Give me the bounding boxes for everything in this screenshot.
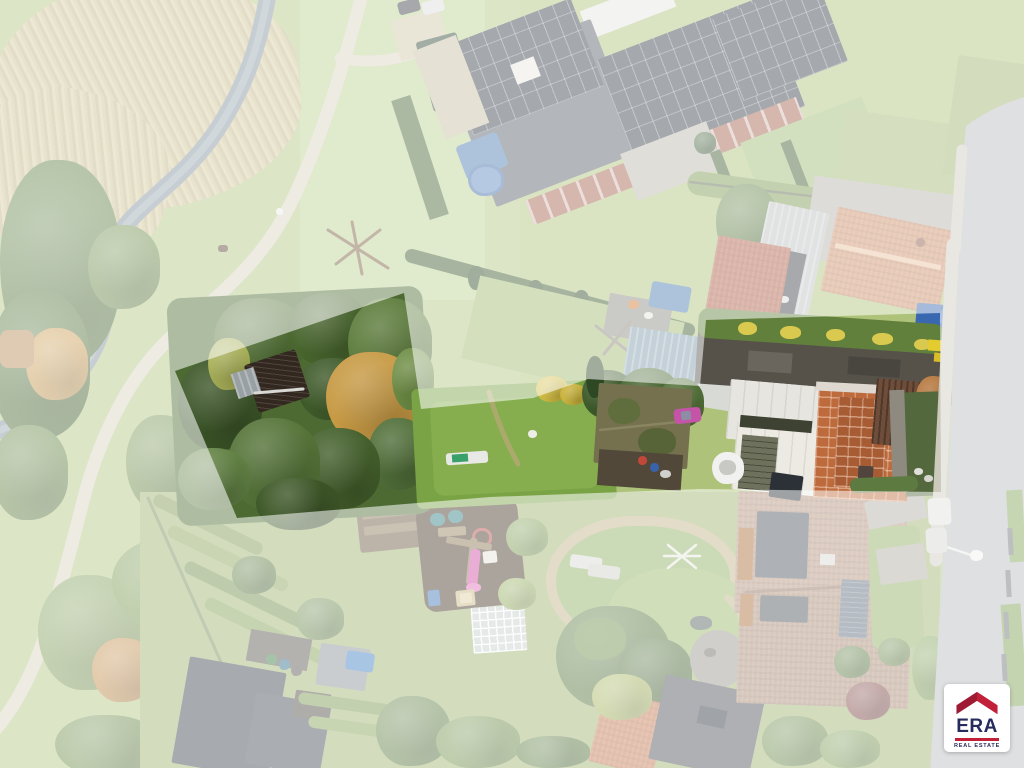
sandbox-sand <box>460 592 473 603</box>
moss-patch <box>608 398 640 424</box>
shed-far-left <box>0 330 34 368</box>
dish-shadow <box>719 460 736 475</box>
solar-panel-small <box>768 472 803 501</box>
big-tree-light <box>574 618 626 660</box>
lamp <box>276 208 283 215</box>
yellow-object <box>928 339 946 351</box>
bush <box>232 556 276 594</box>
scene-layer <box>0 0 1024 768</box>
villa-slate <box>760 595 809 623</box>
era-red-bar <box>955 738 999 741</box>
chimney <box>916 238 925 247</box>
patio-furniture <box>704 648 716 657</box>
table-white <box>482 550 497 563</box>
bin <box>266 654 277 665</box>
villa-solar-panels <box>839 579 870 638</box>
pool-rim <box>471 167 501 193</box>
speck-red <box>638 456 647 465</box>
bush <box>498 578 536 610</box>
tree <box>436 716 520 768</box>
clutter-orange <box>628 300 639 309</box>
bin <box>291 665 302 676</box>
drive-patch <box>747 350 792 373</box>
tree <box>26 328 88 400</box>
era-brand-text: ERA <box>956 717 998 736</box>
clutter-white <box>644 312 653 319</box>
grass-light <box>430 394 600 497</box>
villa-wood-accent <box>739 594 753 626</box>
lane-dash <box>1005 570 1011 597</box>
drive-pavers <box>876 543 929 585</box>
era-logo: ERA REAL ESTATE <box>944 684 1010 752</box>
white-dot <box>528 430 537 438</box>
hedge-flower <box>826 329 845 341</box>
hedge-flower <box>780 326 801 339</box>
bush <box>506 518 548 556</box>
tire-teal <box>448 510 463 523</box>
parked-car <box>927 497 951 525</box>
villa-skylight <box>820 554 835 566</box>
bench-plank <box>438 526 467 537</box>
hedge-flower <box>872 333 893 345</box>
plot-tree <box>178 448 250 510</box>
hedge-flower <box>738 322 757 335</box>
blue-truck-cab <box>939 309 956 324</box>
tire-teal <box>430 513 445 526</box>
era-house-icon <box>954 691 1000 716</box>
pool-blue <box>345 650 375 673</box>
aerial-photo: ERA REAL ESTATE <box>0 0 1024 768</box>
plot-tree <box>256 478 340 530</box>
bush <box>878 638 910 666</box>
villa-slate <box>755 511 809 579</box>
pond <box>690 616 712 630</box>
bush <box>296 598 344 640</box>
tree <box>592 674 652 720</box>
pink-car-glass <box>681 411 692 421</box>
parked-car <box>925 527 947 553</box>
villa-wood-accent <box>737 528 754 580</box>
tree <box>762 716 828 766</box>
blue-item <box>427 589 441 606</box>
garden-speck <box>914 468 923 475</box>
garden-speck <box>924 475 933 482</box>
corner-garden <box>942 55 1024 185</box>
tree <box>820 730 880 768</box>
bush <box>834 646 870 678</box>
era-tagline-text: REAL ESTATE <box>954 743 1000 749</box>
tree <box>88 225 160 309</box>
lounger-stripe <box>452 453 469 462</box>
speck-blue <box>650 463 659 472</box>
tree <box>516 736 590 768</box>
bench <box>218 245 228 252</box>
bin <box>279 659 290 670</box>
yellow-object <box>934 353 948 363</box>
speck-white <box>660 470 671 478</box>
greenhouse <box>470 604 527 654</box>
bush-red <box>846 682 890 720</box>
drive-patch-dark <box>847 356 900 378</box>
tree <box>0 425 68 520</box>
street-lamp <box>970 550 983 561</box>
round-bush <box>694 132 716 154</box>
low-hedge <box>850 476 918 493</box>
